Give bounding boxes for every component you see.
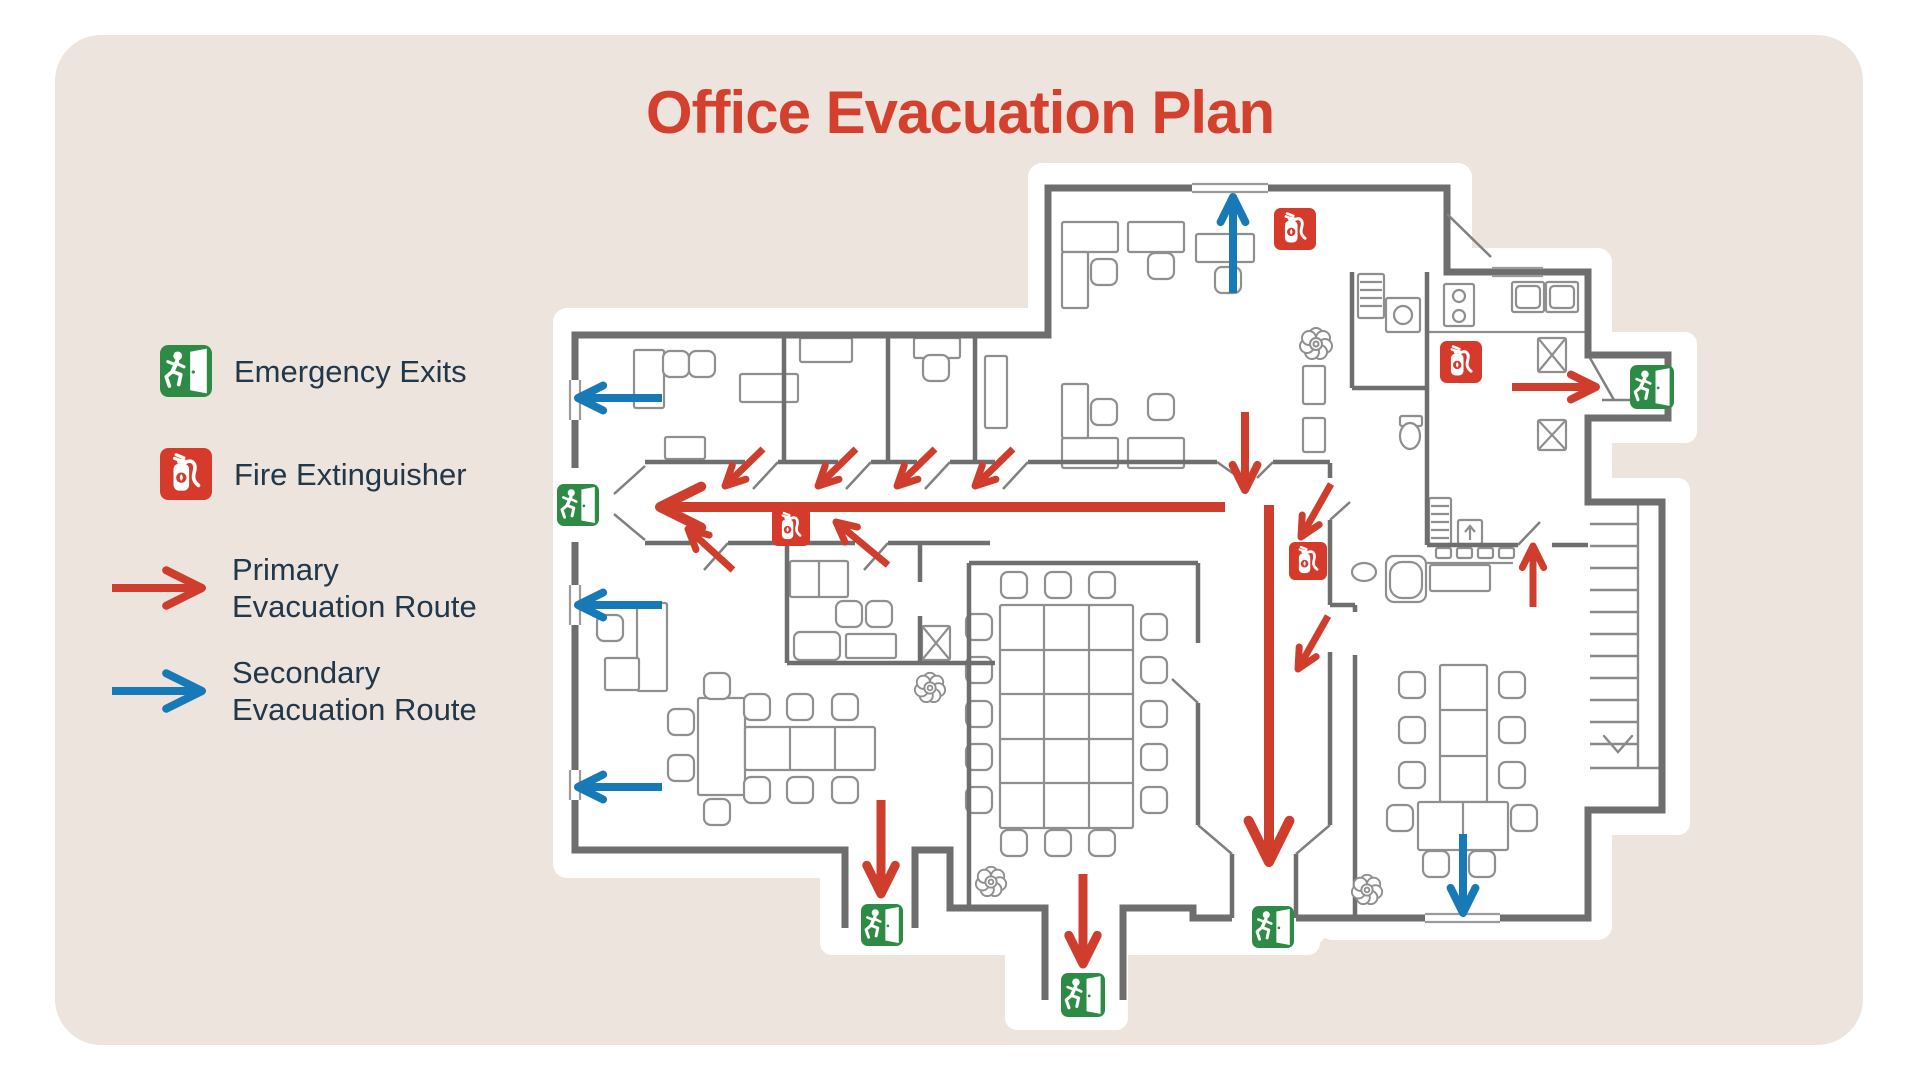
chair bbox=[832, 777, 858, 803]
furniture-item bbox=[1499, 548, 1514, 558]
chair bbox=[1399, 672, 1425, 698]
chair bbox=[1215, 267, 1241, 293]
chair bbox=[668, 709, 694, 735]
furniture-item bbox=[846, 634, 896, 658]
chair bbox=[1141, 614, 1167, 640]
furniture-item bbox=[1358, 274, 1384, 318]
plant-icon bbox=[915, 673, 945, 702]
chair bbox=[1045, 830, 1071, 856]
chair bbox=[1148, 253, 1174, 279]
chair bbox=[1499, 672, 1525, 698]
furniture-item bbox=[1196, 234, 1254, 262]
chair bbox=[1511, 805, 1537, 831]
furniture-item bbox=[1352, 563, 1376, 581]
chair bbox=[1001, 830, 1027, 856]
chair bbox=[1001, 572, 1027, 598]
chair bbox=[1091, 399, 1117, 425]
chair bbox=[923, 355, 949, 381]
furniture-item bbox=[1062, 252, 1088, 308]
chair bbox=[1499, 717, 1525, 743]
chair bbox=[787, 694, 813, 720]
fire-extinguisher-icon bbox=[1274, 208, 1316, 250]
chair bbox=[1399, 717, 1425, 743]
chair bbox=[1141, 787, 1167, 813]
furniture-item bbox=[1062, 384, 1088, 438]
furniture-item bbox=[1440, 665, 1487, 802]
chair bbox=[744, 694, 770, 720]
furniture-item bbox=[1400, 423, 1420, 449]
furniture-item bbox=[1000, 605, 1133, 828]
page-background: Office Evacuation Plan Emergency Exits F… bbox=[0, 0, 1920, 1080]
chair bbox=[704, 799, 730, 825]
chair bbox=[1423, 851, 1449, 877]
furniture-item bbox=[1453, 310, 1465, 322]
chair bbox=[704, 673, 730, 699]
furniture-item bbox=[1128, 222, 1184, 252]
furniture-item bbox=[1303, 366, 1325, 404]
furniture-item bbox=[605, 658, 639, 690]
furniture-item bbox=[1062, 222, 1118, 252]
exit-sign-icon bbox=[1061, 973, 1105, 1017]
chair bbox=[1089, 830, 1115, 856]
furniture-item bbox=[1457, 548, 1472, 558]
chair bbox=[668, 755, 694, 781]
chair bbox=[1141, 657, 1167, 683]
furniture-item bbox=[698, 698, 745, 795]
furniture-item bbox=[1516, 286, 1540, 308]
furniture-item bbox=[637, 603, 667, 691]
chair bbox=[1469, 851, 1495, 877]
chair bbox=[1091, 259, 1117, 285]
chair bbox=[1499, 762, 1525, 788]
fire-extinguisher-icon bbox=[1289, 542, 1327, 580]
fire-extinguisher-icon bbox=[772, 508, 810, 546]
plant-icon bbox=[976, 867, 1006, 896]
chair bbox=[832, 694, 858, 720]
furniture-item bbox=[1394, 306, 1412, 324]
chair bbox=[689, 351, 715, 377]
furniture-item bbox=[1478, 548, 1493, 558]
exit-sign-icon bbox=[1252, 906, 1294, 948]
furniture-item bbox=[1303, 418, 1325, 452]
exit-sign-icon bbox=[1630, 365, 1674, 409]
furniture-item bbox=[665, 437, 705, 459]
furniture-item bbox=[985, 356, 1007, 428]
chair bbox=[1089, 572, 1115, 598]
chair bbox=[836, 601, 862, 627]
chair bbox=[1148, 394, 1174, 420]
exit-sign-icon bbox=[861, 904, 903, 946]
fire-extinguisher-icon bbox=[1440, 341, 1482, 383]
chair bbox=[1141, 701, 1167, 727]
floor-plan bbox=[0, 0, 1920, 1080]
furniture-item bbox=[740, 374, 798, 402]
furniture-item bbox=[1453, 290, 1465, 302]
plant-icon bbox=[1300, 328, 1332, 359]
furniture-item bbox=[800, 338, 852, 362]
furniture-item bbox=[1550, 286, 1574, 308]
furniture-item bbox=[1390, 562, 1422, 598]
chair bbox=[1045, 572, 1071, 598]
plant-icon bbox=[1352, 875, 1382, 904]
chair bbox=[787, 777, 813, 803]
furniture-item bbox=[1436, 548, 1451, 558]
chair bbox=[1141, 744, 1167, 770]
chair bbox=[663, 351, 689, 377]
exit-sign-icon bbox=[557, 484, 599, 526]
furniture-item bbox=[745, 727, 875, 770]
chair bbox=[1399, 762, 1425, 788]
chair bbox=[1387, 805, 1413, 831]
furniture-item bbox=[1430, 565, 1490, 591]
chair bbox=[744, 777, 770, 803]
chair bbox=[866, 601, 892, 627]
furniture-item bbox=[794, 632, 840, 660]
